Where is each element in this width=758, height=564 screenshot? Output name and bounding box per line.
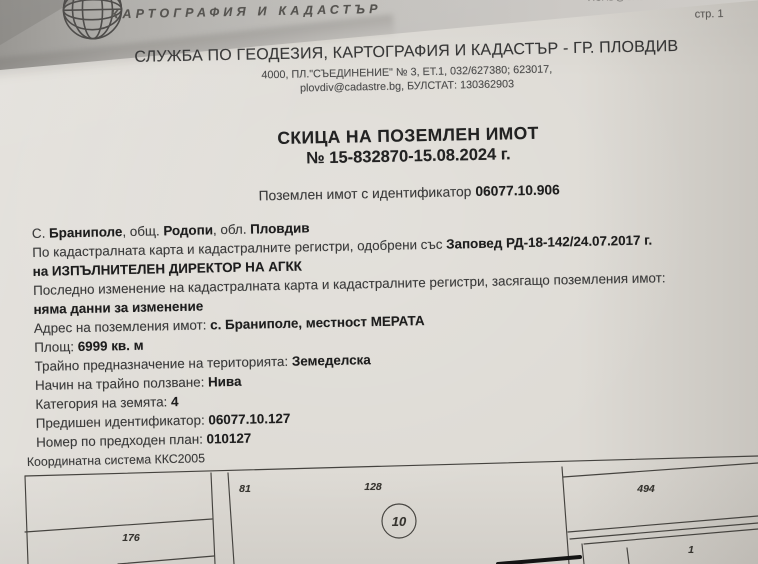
scanned-document-photo: КАРТОГРАФИЯ И КАДАСТЪР ACAD@CADASTRE.BG … [0,0,758,564]
page-number-label: стр. 1 [695,8,724,21]
subject-identifier: 06077.10.906 [475,182,560,199]
subject-label: Поземлен имот с идентификатор [259,184,472,203]
subject-line: Поземлен имот с идентификатор06077.10.90… [30,178,758,208]
parcel-label-81: 81 [239,483,251,495]
circled-parcel-label: 10 [392,514,407,529]
cadastral-map-fragment: Координатна система ККС2005 81 176 128 4… [0,450,758,564]
parcel-label-176: 176 [122,532,140,544]
coordinate-system-label: Координатна система ККС2005 [27,451,206,469]
parcel-label-1: 1 [688,544,694,556]
property-details: С. Браниполе, общ. Родопи, обл. ПловдивП… [32,211,669,452]
parcel-label-128: 128 [364,481,382,493]
parcel-label-494: 494 [636,483,655,495]
